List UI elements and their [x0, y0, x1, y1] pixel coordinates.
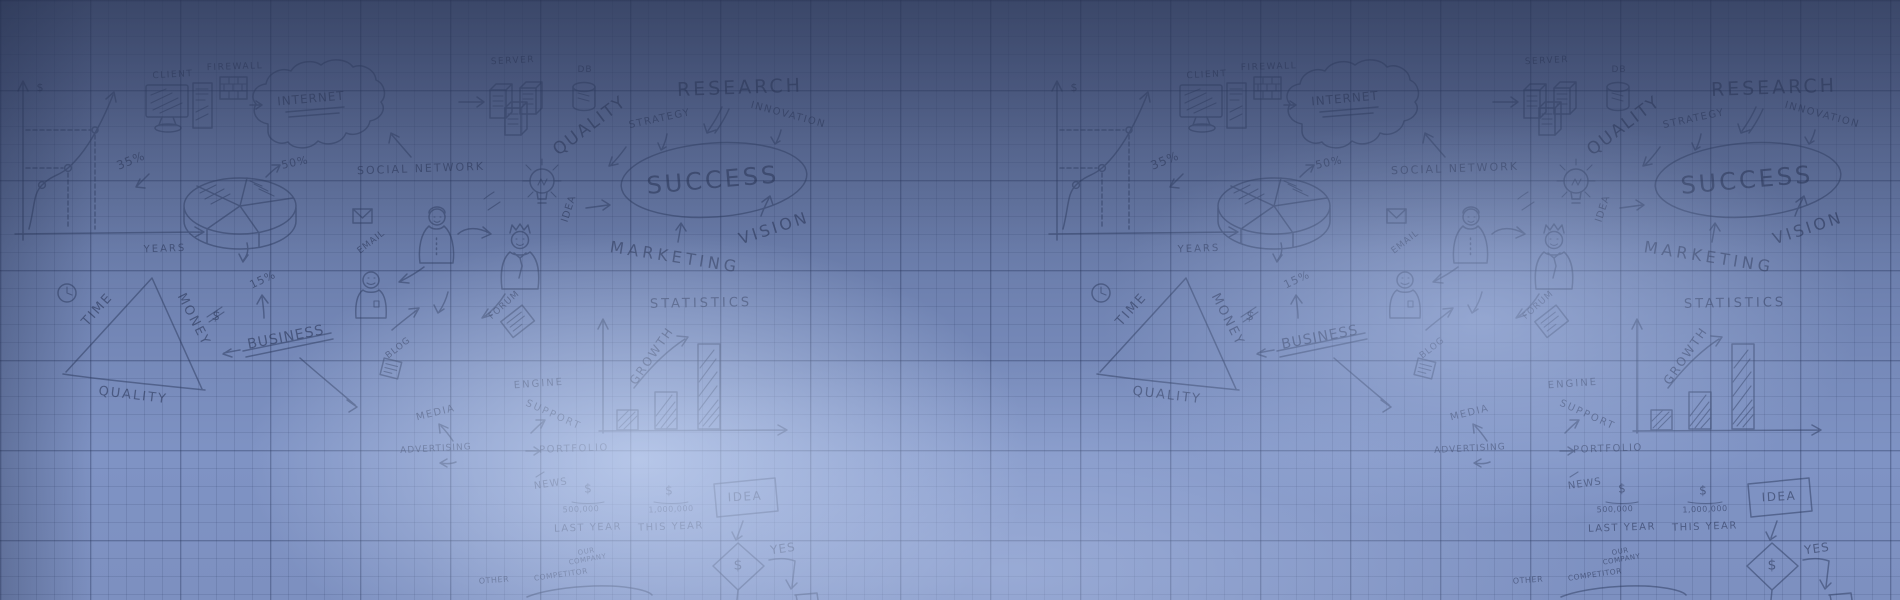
banner-background: $35%YEARSCLIENTFIREWALLINTERNETSERVERDBQ… — [0, 0, 1900, 600]
doodle-sketches — [0, 0, 1900, 600]
